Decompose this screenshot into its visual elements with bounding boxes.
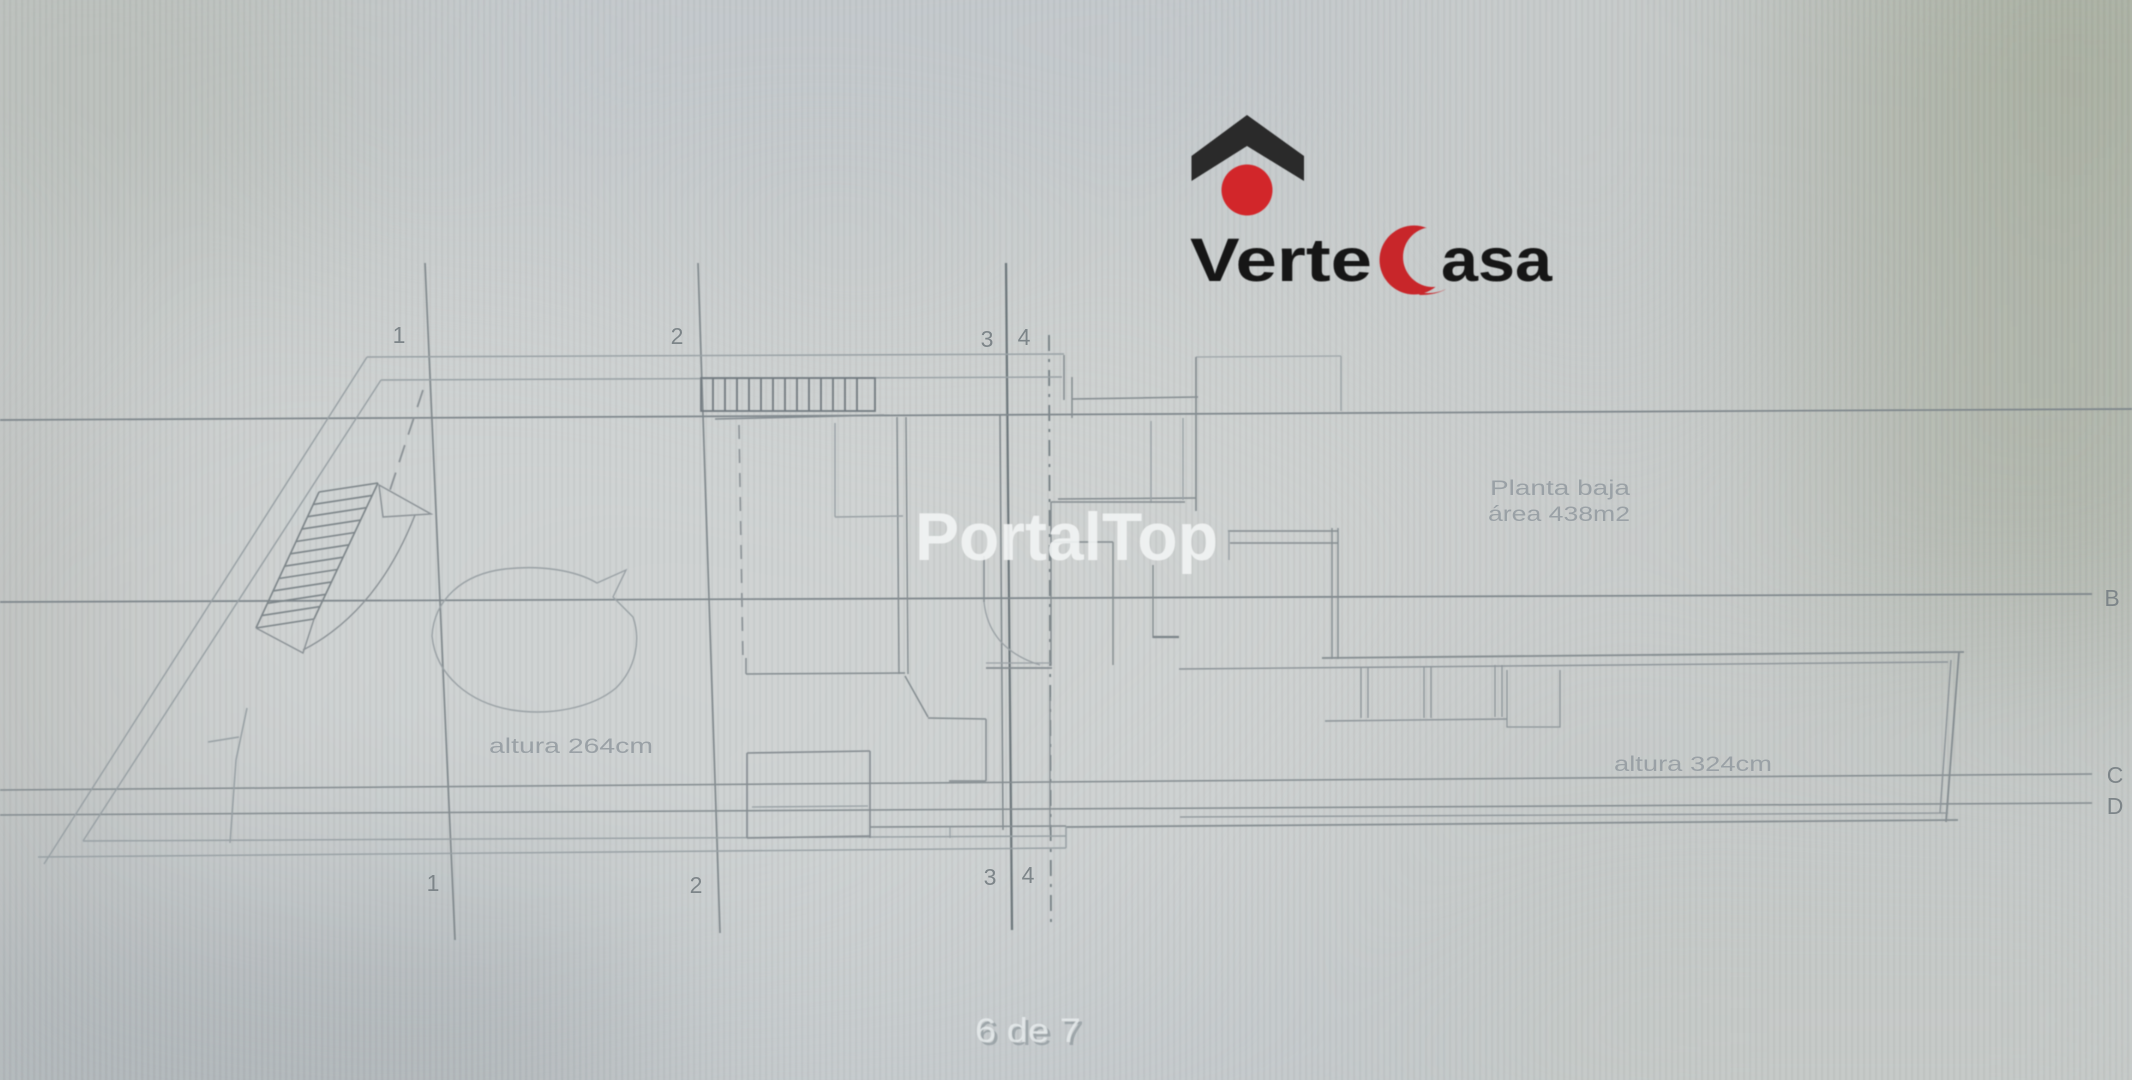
svg-text:3: 3 [984,864,997,890]
svg-text:4: 4 [1022,862,1035,888]
svg-text:Verte: Verte [1190,226,1372,294]
svg-text:3: 3 [981,326,994,352]
svg-text:C: C [2107,762,2124,788]
svg-text:4: 4 [1018,324,1031,350]
svg-text:altura 324cm: altura 324cm [1614,753,1772,776]
svg-text:altura 264cm: altura 264cm [489,735,653,758]
svg-text:B: B [2104,585,2119,611]
svg-text:2: 2 [671,323,684,349]
svg-text:PortalTop: PortalTop [915,499,1218,575]
svg-text:asa: asa [1441,226,1553,294]
svg-text:1: 1 [427,870,440,896]
svg-text:D: D [2107,793,2124,819]
svg-text:Planta baja: Planta baja [1490,477,1630,500]
svg-text:1: 1 [393,322,406,348]
svg-text:área 438m2: área 438m2 [1488,503,1630,526]
svg-text:6 de 7: 6 de 7 [975,1012,1081,1050]
svg-text:2: 2 [690,872,703,898]
